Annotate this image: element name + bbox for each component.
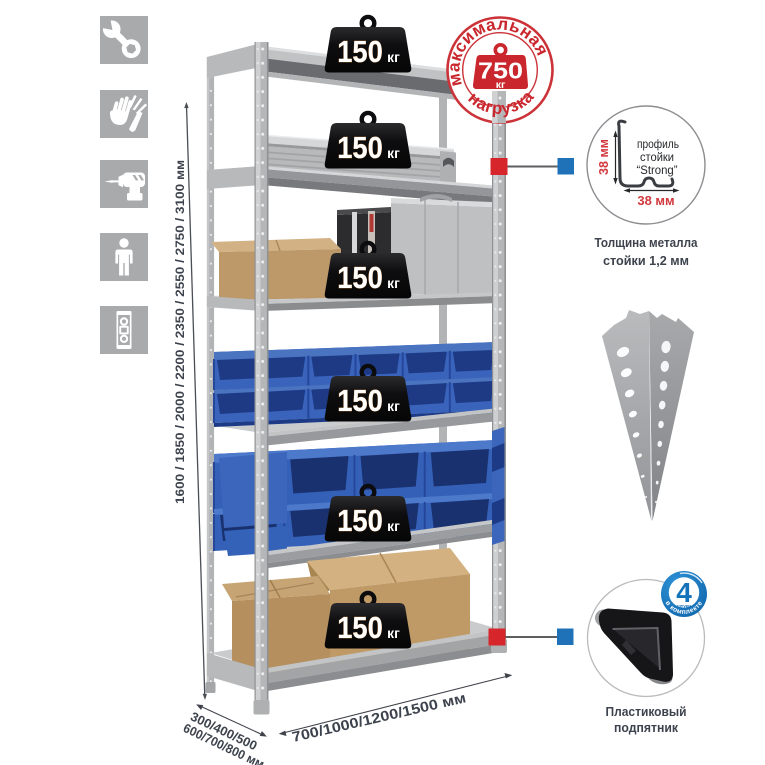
svg-text:Пластиковый: Пластиковый — [606, 704, 687, 719]
svg-text:кг: кг — [387, 50, 400, 65]
svg-text:кг: кг — [387, 399, 400, 414]
svg-text:150: 150 — [337, 384, 383, 418]
svg-text:150: 150 — [337, 35, 383, 69]
svg-text:профиль: профиль — [637, 137, 679, 151]
svg-text:150: 150 — [337, 131, 383, 165]
svg-text:150: 150 — [337, 261, 383, 295]
svg-text:“Strong”: “Strong” — [637, 163, 678, 177]
svg-text:38 мм: 38 мм — [597, 139, 611, 175]
svg-text:кг: кг — [387, 146, 400, 161]
svg-text:150: 150 — [337, 504, 383, 538]
svg-text:38 мм: 38 мм — [637, 193, 674, 208]
svg-text:стойки: стойки — [640, 150, 674, 164]
svg-text:1600 / 1850 / 2000 / 2200 / 23: 1600 / 1850 / 2000 / 2200 / 2350 / 2550 … — [173, 160, 187, 504]
svg-text:700/1000/1200/1500 мм: 700/1000/1200/1500 мм — [291, 690, 468, 746]
svg-text:стойки 1,2 мм: стойки 1,2 мм — [603, 253, 689, 268]
svg-text:кг: кг — [387, 626, 400, 641]
svg-text:подпятник: подпятник — [614, 720, 678, 735]
svg-text:штуки: штуки — [677, 604, 691, 609]
svg-text:кг: кг — [387, 276, 400, 291]
svg-text:кг: кг — [496, 79, 506, 91]
svg-text:кг: кг — [387, 519, 400, 534]
svg-text:Толщина металла: Толщина металла — [595, 235, 699, 250]
svg-text:150: 150 — [337, 611, 383, 645]
